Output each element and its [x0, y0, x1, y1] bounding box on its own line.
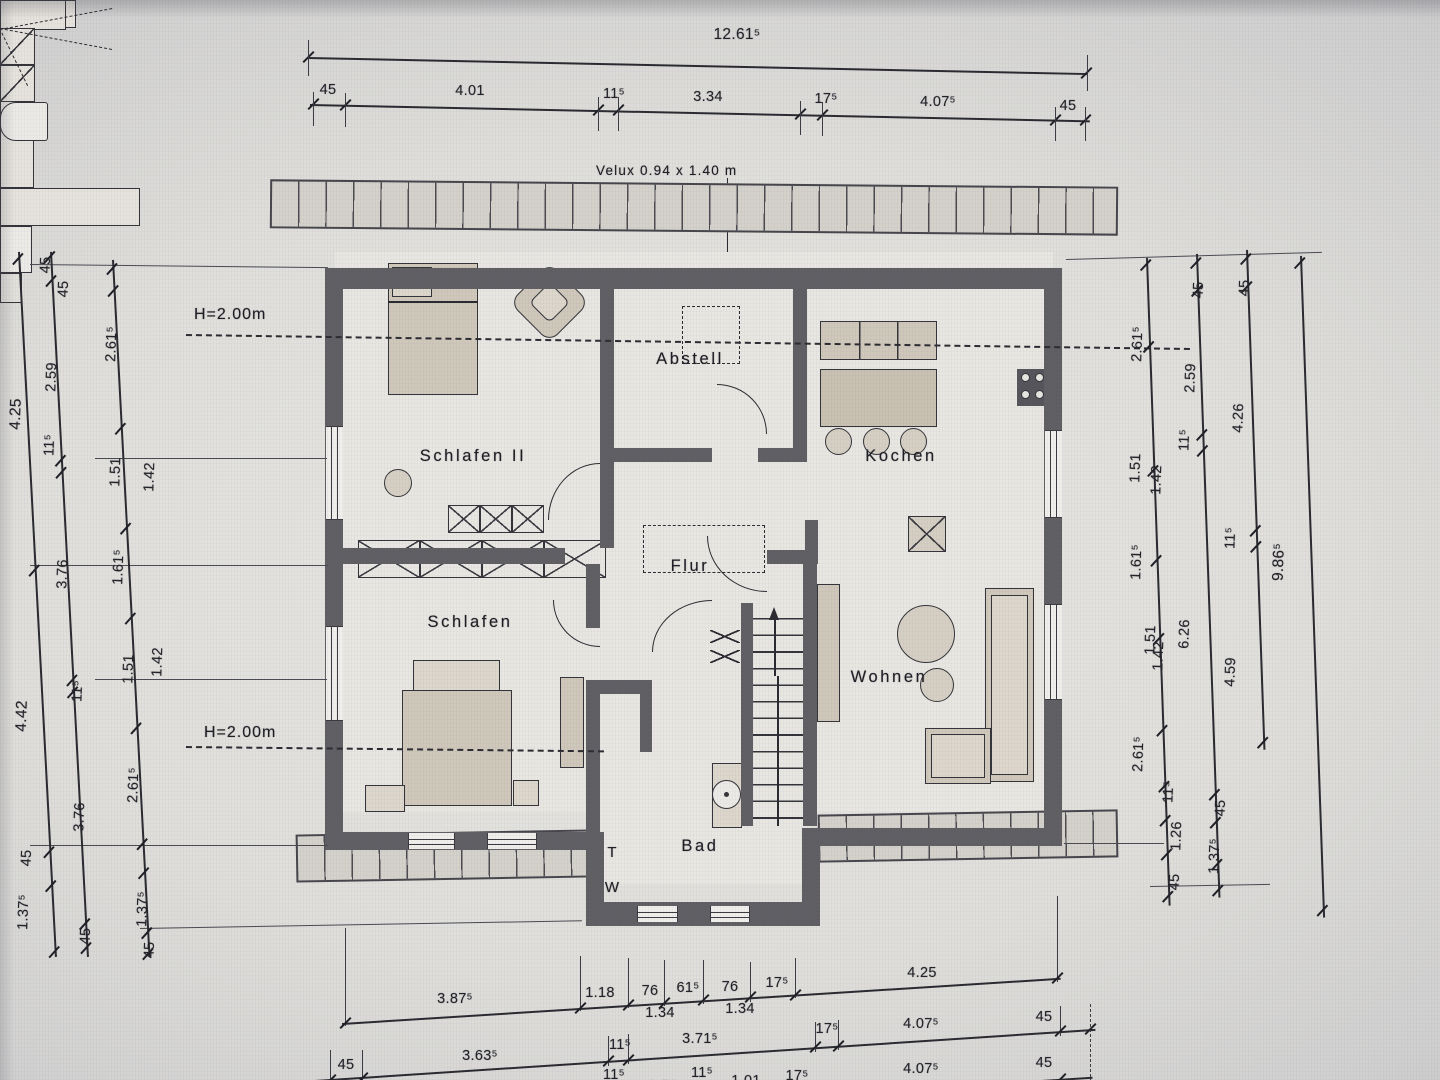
- dim-label: 17⁵: [785, 1069, 808, 1080]
- dim-label: 1.42: [1149, 465, 1165, 495]
- roof-window-symbol-flur: [0, 28, 114, 30]
- shelf-icon: [817, 584, 840, 722]
- dim-label: 3.63⁵: [462, 1049, 498, 1064]
- dim-label: 4.01: [455, 84, 484, 99]
- dim-label: 1.18: [585, 986, 614, 1001]
- wall-abstell-kochen: [793, 289, 807, 462]
- dim-label: 1.34: [725, 1002, 754, 1017]
- dim-label: 9.86⁵: [1271, 543, 1288, 582]
- dim-label: 45: [142, 941, 157, 958]
- window: [1045, 430, 1062, 518]
- dim-label: 11⁵: [1161, 781, 1176, 803]
- room-label-wohnen: Wohnen: [851, 668, 928, 687]
- wall-bad-bottom: [586, 902, 820, 926]
- dim-label: 3.76: [72, 802, 88, 832]
- dim-label: 45: [1237, 279, 1252, 296]
- dim-label: 4.25: [8, 398, 25, 430]
- kitchen-counter-icon: [0, 188, 140, 226]
- room-label-bad: Bad: [681, 837, 718, 856]
- window: [326, 626, 343, 721]
- dim-label: 4.59: [1223, 657, 1239, 687]
- window: [1045, 604, 1062, 700]
- dim-label: 45: [19, 849, 34, 866]
- room-label-kochen: Kochen: [865, 447, 937, 466]
- stair-direction-arrow: [769, 607, 779, 620]
- stool-icon: [384, 469, 412, 497]
- dishwasher-icon: [908, 516, 946, 552]
- washer-label: W: [605, 879, 619, 896]
- dim-label: 1.37⁵: [135, 891, 151, 927]
- furniture-schlafen2: [0, 0, 66, 30]
- dim-label: 76: [722, 980, 739, 995]
- dim-label: 1.26: [1169, 821, 1185, 851]
- dim-label: 17⁵: [815, 1022, 838, 1037]
- wall-exterior-bottom-left: [325, 832, 602, 850]
- railing-mark: [710, 650, 740, 663]
- height-mark-upper: H=2.00m: [194, 306, 266, 324]
- wall-exterior-top: [325, 268, 1062, 289]
- dim-label: 11⁵: [70, 680, 85, 702]
- window: [326, 426, 343, 520]
- dim-label: 45: [1036, 1056, 1053, 1071]
- wall-stair-left: [741, 603, 753, 826]
- wall-exterior-right: [1044, 268, 1062, 846]
- round-table-icon: [897, 605, 955, 663]
- dryer-label: T: [607, 844, 616, 861]
- window: [710, 906, 750, 922]
- dim-label: 4.42: [14, 700, 31, 732]
- dim-label: 45: [320, 83, 337, 98]
- dim-label: 17⁵: [814, 92, 837, 107]
- dim-label: 2.61⁵: [104, 326, 120, 362]
- dim-label: 45: [1036, 1010, 1053, 1025]
- wardrobe-icon: [480, 505, 512, 533]
- wall-abstell-bottom: [614, 448, 712, 462]
- dim-label: 11⁵: [603, 87, 625, 102]
- dim-label: 2.61⁵: [126, 767, 142, 803]
- dining-table-icon: [820, 369, 937, 427]
- bed-head-icon: [413, 660, 500, 692]
- dim-label: 1.01: [731, 1074, 760, 1080]
- dim-label: 1.42: [142, 462, 158, 492]
- dim-label: 3.71⁵: [682, 1032, 718, 1047]
- dim-label: 2.59: [44, 362, 60, 392]
- dim-label: 45: [338, 1058, 355, 1073]
- washer-icon: [0, 65, 35, 102]
- wall-bad-stub: [640, 694, 652, 752]
- window: [487, 833, 537, 849]
- dim-label: 11⁵: [603, 1068, 625, 1080]
- sink-icon: [0, 102, 48, 141]
- wall-schlafen2-abstell: [600, 289, 614, 548]
- wall-bad-right: [802, 828, 820, 926]
- room-label-flur: Flur: [671, 557, 710, 576]
- wall-schlafen-east-lower: [586, 683, 600, 832]
- sideboard-icon: [820, 321, 937, 360]
- room-label-schlafen2: Schlafen II: [420, 447, 527, 466]
- wall-stair-right: [803, 564, 817, 826]
- dim-label: 45: [56, 280, 71, 297]
- dim-label: 45: [38, 256, 53, 273]
- dim-label: 3.76: [55, 559, 71, 589]
- dim-label: 1.61⁵: [111, 549, 127, 585]
- dim-label: 3.34: [693, 90, 722, 105]
- dim-label: 45: [1213, 799, 1228, 816]
- dim-label: 1.37⁵: [16, 894, 32, 930]
- wardrobe-icon: [512, 505, 544, 533]
- dim-label: 2.59: [1183, 363, 1199, 393]
- stool-icon: [825, 428, 852, 455]
- dim-label: 45: [1167, 873, 1182, 890]
- roof-eave-band-top: [270, 179, 1118, 235]
- nightstand-icon: [513, 780, 539, 806]
- dim-label: 1.51: [1128, 453, 1144, 483]
- dim-overall-width: 12.61⁵: [713, 27, 760, 43]
- floorplan-photo: 12.61⁵ 45 4.01 11⁵ 3.34 17⁵ 4.07⁵ 45 Vel…: [0, 0, 1440, 1080]
- dim-label: 1.61⁵: [1129, 544, 1145, 580]
- dim-label: 76: [642, 984, 659, 999]
- wall-schlafen2-schlafen: [341, 548, 565, 564]
- wall-abstell-bottom: [758, 448, 793, 462]
- wall-exterior-bottom-right: [816, 828, 1062, 846]
- dim-label: 11⁵: [1223, 527, 1238, 549]
- dim-label: 1.37⁵: [1207, 838, 1223, 874]
- room-label-abstell: Abstell: [656, 350, 724, 369]
- dim-label: 4.26: [1231, 403, 1247, 433]
- dim-label: 61⁵: [676, 981, 699, 996]
- dim-label: 1.42: [1151, 641, 1167, 671]
- dim-label: 11⁵: [609, 1038, 631, 1053]
- room-label-schlafen: Schlafen: [427, 613, 512, 632]
- dim-label: 2.61⁵: [1131, 736, 1147, 772]
- velux-note: Velux 0.94 x 1.40 m: [596, 163, 737, 178]
- cabinet-icon: [560, 677, 584, 768]
- dim-label: 45: [1060, 99, 1077, 114]
- dim-label: 1.51: [121, 654, 137, 684]
- dim-label: 1.34: [645, 1006, 674, 1021]
- dim-label: 45: [78, 927, 93, 944]
- dim-label: 17⁵: [765, 976, 788, 991]
- window: [637, 906, 678, 922]
- wardrobe-icon: [448, 505, 480, 533]
- dim-label: 2.61⁵: [1130, 326, 1146, 362]
- nightstand-icon: [365, 785, 405, 812]
- dim-label: 4.07⁵: [903, 1062, 939, 1077]
- dim-label: 11⁵: [42, 434, 57, 456]
- railing-mark: [710, 630, 740, 643]
- wardrobe-icon: [0, 0, 66, 30]
- dim-label: 4.07⁵: [920, 95, 956, 110]
- dim-label: 3.87⁵: [437, 992, 473, 1007]
- dim-label: 11⁵: [691, 1066, 713, 1080]
- dim-label: 1.51: [108, 457, 124, 487]
- height-mark-lower: H=2.00m: [204, 724, 276, 742]
- dim-label: 11⁵: [1177, 429, 1192, 451]
- window: [408, 833, 455, 849]
- dim-label: 45: [1191, 281, 1206, 298]
- dim-label: 1.42: [150, 647, 166, 677]
- dim-label: 6.26: [1177, 619, 1193, 649]
- dim-label: 4.07⁵: [903, 1017, 939, 1032]
- dim-label: 4.25: [907, 966, 936, 981]
- wall-flur-passage: [767, 550, 816, 564]
